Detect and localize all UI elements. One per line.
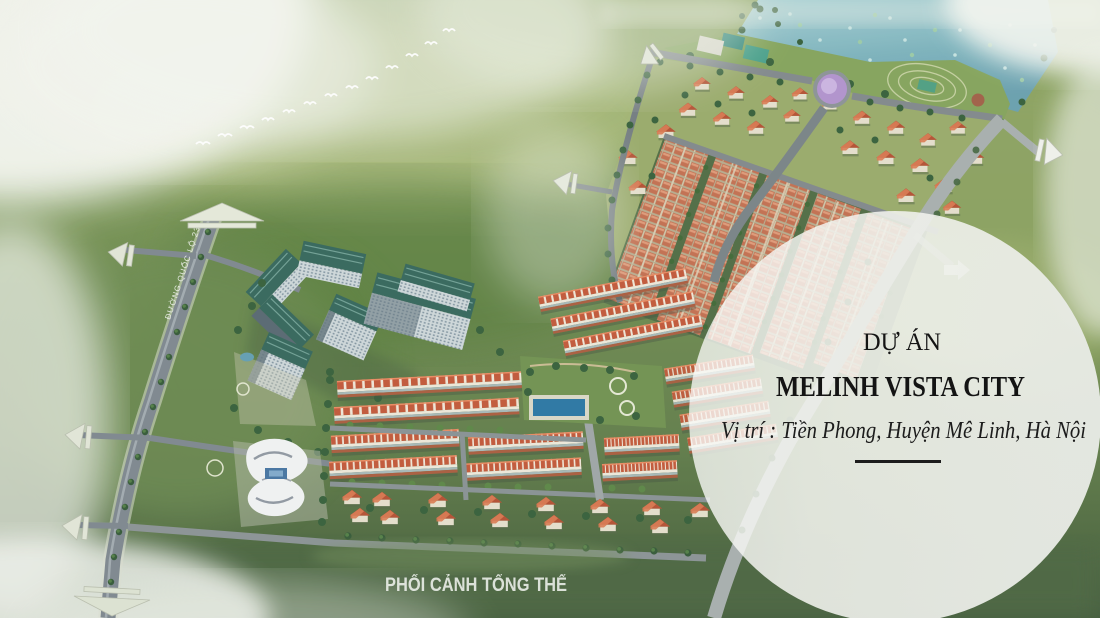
svg-text:MELINH VISTA CITY: MELINH VISTA CITY — [776, 372, 1025, 403]
svg-text:DỰ ÁN: DỰ ÁN — [863, 328, 941, 356]
svg-text:PHỐI CẢNH TỔNG THỂ: PHỐI CẢNH TỔNG THỂ — [385, 574, 567, 596]
svg-text:Vị trí : Tiền Phong, Huyện Mê: Vị trí : Tiền Phong, Huyện Mê Linh, Hà N… — [721, 418, 1086, 444]
